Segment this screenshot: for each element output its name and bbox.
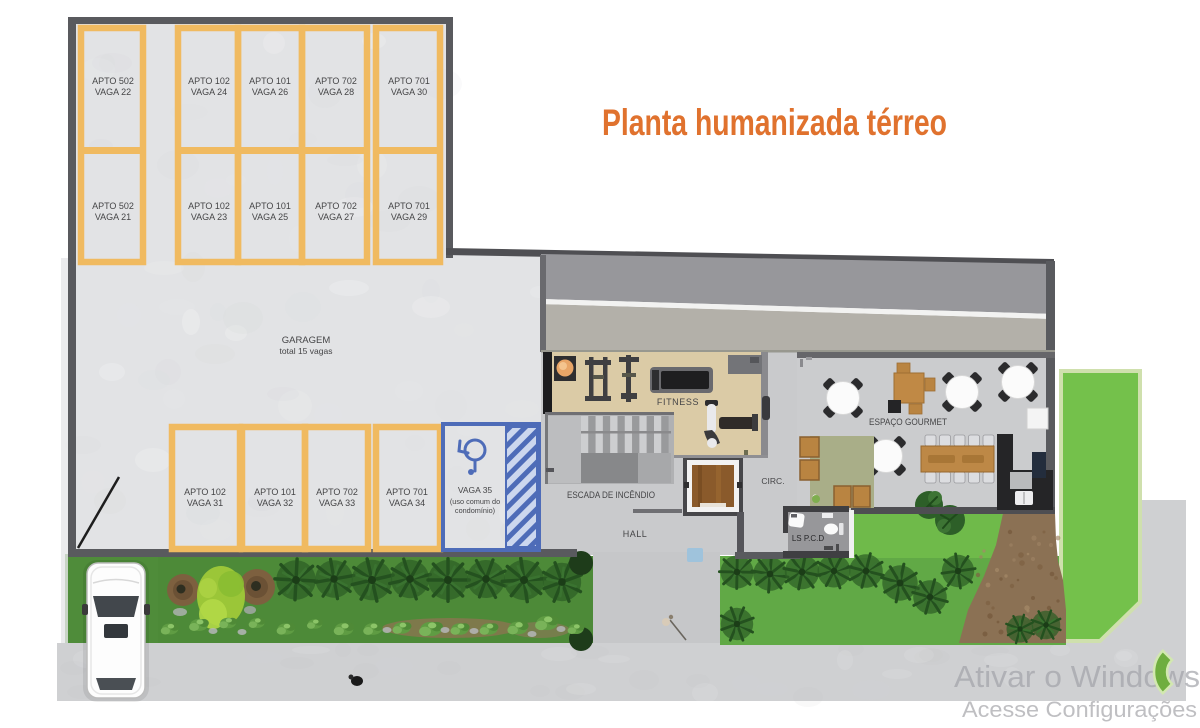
svg-text:ESCADA DE INCÊNDIO: ESCADA DE INCÊNDIO bbox=[567, 490, 655, 500]
svg-text:VAGA 29: VAGA 29 bbox=[391, 212, 427, 222]
svg-text:Acesse Configurações: Acesse Configurações bbox=[962, 697, 1197, 722]
svg-text:condomínio): condomínio) bbox=[455, 506, 495, 515]
svg-text:LS P.C.D: LS P.C.D bbox=[792, 534, 825, 543]
svg-text:APTO 102: APTO 102 bbox=[184, 487, 226, 497]
svg-text:APTO 102: APTO 102 bbox=[188, 76, 230, 86]
svg-text:ESPAÇO GOURMET: ESPAÇO GOURMET bbox=[869, 417, 947, 427]
svg-text:VAGA 35: VAGA 35 bbox=[458, 485, 493, 495]
svg-text:VAGA 25: VAGA 25 bbox=[252, 212, 288, 222]
svg-text:VAGA 26: VAGA 26 bbox=[252, 87, 288, 97]
svg-text:VAGA 24: VAGA 24 bbox=[191, 87, 227, 97]
svg-text:VAGA 22: VAGA 22 bbox=[95, 87, 131, 97]
svg-text:APTO 101: APTO 101 bbox=[249, 76, 291, 86]
svg-text:VAGA 34: VAGA 34 bbox=[389, 498, 425, 508]
svg-text:APTO 502: APTO 502 bbox=[92, 201, 134, 211]
svg-text:APTO 701: APTO 701 bbox=[386, 487, 428, 497]
svg-text:APTO 101: APTO 101 bbox=[254, 487, 296, 497]
svg-text:HALL: HALL bbox=[623, 529, 648, 539]
svg-text:APTO 702: APTO 702 bbox=[316, 487, 358, 497]
svg-text:Planta humanizada térreo: Planta humanizada térreo bbox=[602, 102, 947, 143]
svg-text:VAGA 23: VAGA 23 bbox=[191, 212, 227, 222]
svg-text:APTO 701: APTO 701 bbox=[388, 201, 430, 211]
svg-text:(uso comum do: (uso comum do bbox=[450, 497, 500, 506]
svg-text:APTO 701: APTO 701 bbox=[388, 76, 430, 86]
svg-text:APTO 702: APTO 702 bbox=[315, 201, 357, 211]
svg-text:VAGA 28: VAGA 28 bbox=[318, 87, 354, 97]
svg-text:CIRC.: CIRC. bbox=[761, 476, 784, 486]
svg-text:APTO 502: APTO 502 bbox=[92, 76, 134, 86]
svg-text:VAGA 21: VAGA 21 bbox=[95, 212, 131, 222]
svg-text:APTO 702: APTO 702 bbox=[315, 76, 357, 86]
svg-text:VAGA 31: VAGA 31 bbox=[187, 498, 223, 508]
svg-text:VAGA 33: VAGA 33 bbox=[319, 498, 355, 508]
svg-text:APTO 102: APTO 102 bbox=[188, 201, 230, 211]
svg-text:VAGA 30: VAGA 30 bbox=[391, 87, 427, 97]
svg-text:APTO 101: APTO 101 bbox=[249, 201, 291, 211]
svg-text:VAGA 32: VAGA 32 bbox=[257, 498, 293, 508]
svg-text:FITNESS: FITNESS bbox=[657, 397, 699, 407]
svg-text:GARAGEM: GARAGEM bbox=[282, 335, 331, 346]
svg-text:VAGA 27: VAGA 27 bbox=[318, 212, 354, 222]
svg-text:total 15 vagas: total 15 vagas bbox=[280, 346, 333, 356]
